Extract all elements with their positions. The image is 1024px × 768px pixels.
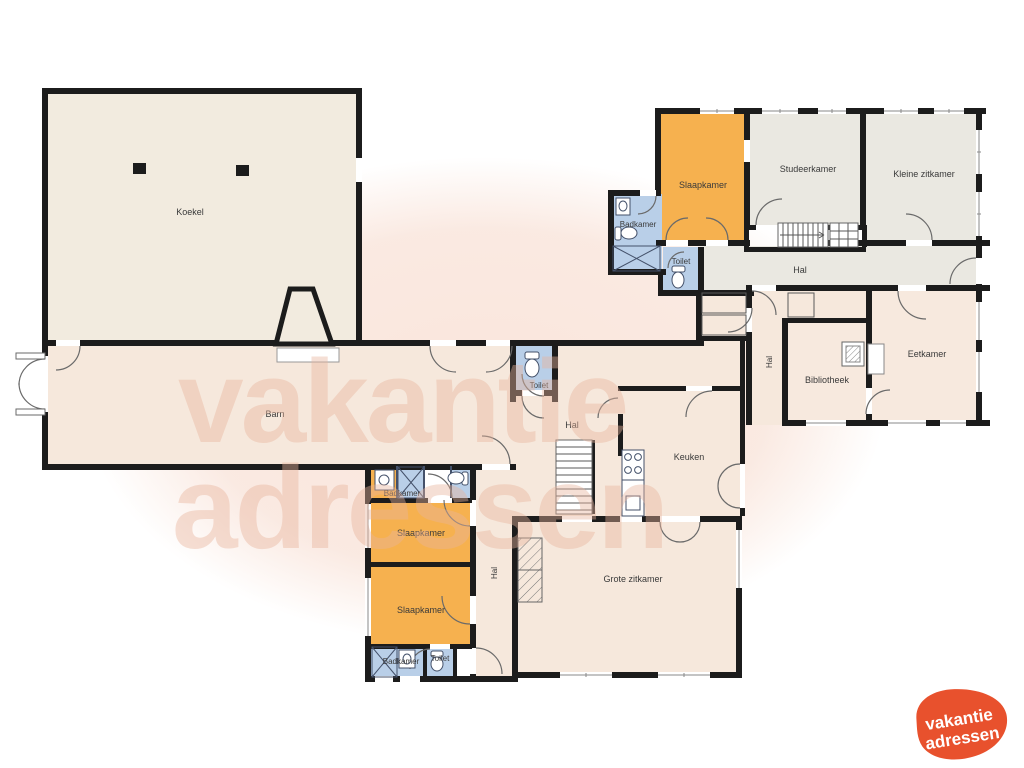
room-label-hal-mid: Hal (765, 356, 774, 368)
watermark-line2: adressen (172, 442, 666, 574)
toilet-icon-tr (672, 266, 685, 288)
room-label-hal-top: Hal (793, 265, 807, 275)
room-label-koekel: Koekel (176, 207, 204, 217)
room-label-toilet-b2: Toilet (431, 654, 450, 663)
sink-icon-badkamer-tr (616, 198, 630, 215)
room-label-badkamer-b2: Badkamer (383, 657, 420, 666)
fireplace (842, 342, 864, 366)
room-label-badkamer-tr: Badkamer (620, 220, 657, 229)
room-label-studeerkamer: Studeerkamer (780, 164, 837, 174)
room-label-bibliotheek: Bibliotheek (805, 375, 850, 385)
room-label-kleine-zitkamer: Kleine zitkamer (893, 169, 955, 179)
room-label-eetkamer: Eetkamer (908, 349, 947, 359)
floorplan-page: Koekel Barn Slaapkamer Studeerkamer Klei… (0, 0, 1024, 768)
stairs-top-right (778, 223, 858, 247)
room-label-keuken: Keuken (674, 452, 705, 462)
watermark: vakantie adressen (172, 336, 666, 574)
room-label-slaapkamer-b2: Slaapkamer (397, 605, 445, 615)
room-label-slaapkamer-tr: Slaapkamer (679, 180, 727, 190)
room-label-grote-zitkamer: Grote zitkamer (603, 574, 662, 584)
room-label-toilet-tr: Toilet (672, 257, 691, 266)
